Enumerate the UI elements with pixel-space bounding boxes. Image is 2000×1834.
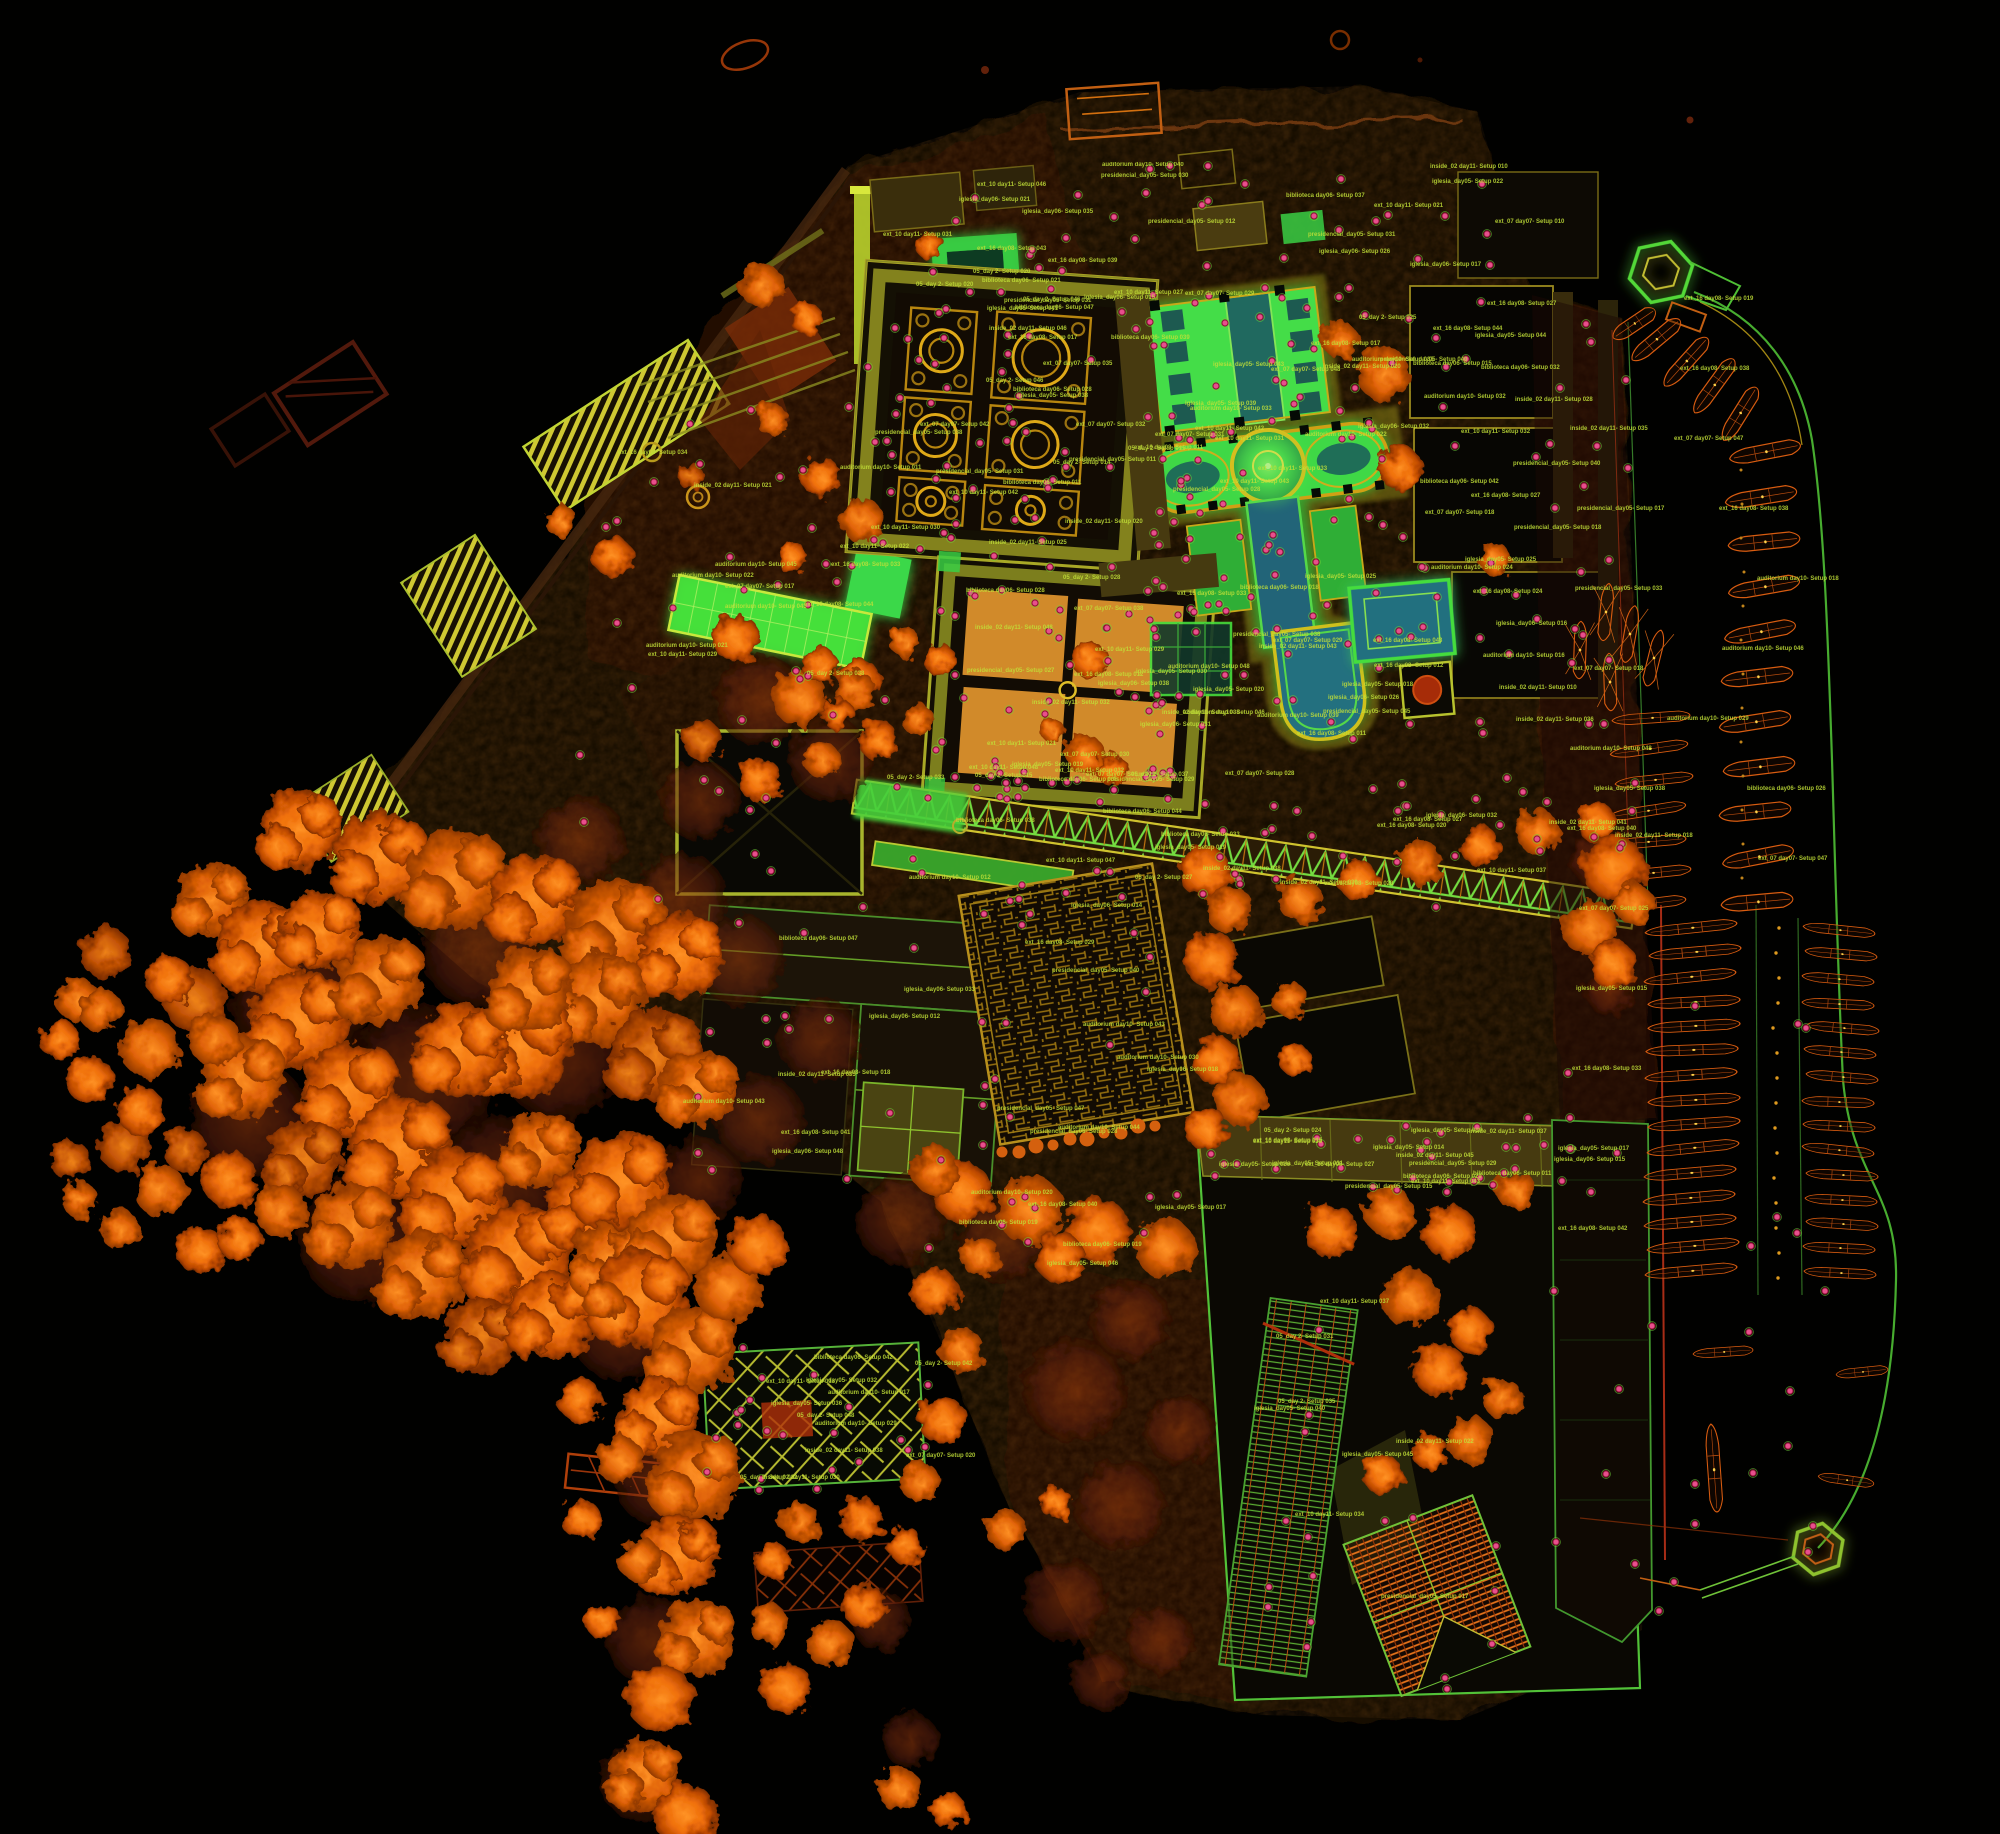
svg-text:ext_16 day08- Setup 015: ext_16 day08- Setup 015	[1253, 1138, 1323, 1144]
svg-text:ext_07 day07- Setup 047: ext_07 day07- Setup 047	[1758, 856, 1828, 862]
svg-text:ext_16 day08- Setup 038: ext_16 day08- Setup 038	[1680, 366, 1750, 372]
svg-text:presidencial_day05- Setup 040: presidencial_day05- Setup 040	[1052, 968, 1140, 974]
svg-text:biblioteca day06- Setup 032: biblioteca day06- Setup 032	[1481, 365, 1560, 371]
svg-text:biblioteca day06- Setup 019: biblioteca day06- Setup 019	[959, 1220, 1038, 1226]
svg-text:ext_16 day08- Setup 011: ext_16 day08- Setup 011	[1297, 731, 1367, 737]
svg-text:05_day 2- Setup 014: 05_day 2- Setup 014	[1053, 460, 1111, 466]
svg-text:05_day 2- Setup 015: 05_day 2- Setup 015	[975, 773, 1033, 779]
svg-text:ext_16 day08- Setup 033: ext_16 day08- Setup 033	[831, 562, 901, 568]
svg-text:ext_10 day11- Setup 042: ext_10 day11- Setup 042	[1195, 426, 1265, 432]
svg-text:biblioteca day06- Setup 011: biblioteca day06- Setup 011	[1003, 480, 1082, 486]
svg-text:ext_10 day11- Setup 043: ext_10 day11- Setup 043	[1220, 479, 1290, 485]
svg-text:iglesia_day05- Setup 019: iglesia_day05- Setup 019	[1411, 1128, 1483, 1134]
svg-text:inside_02 day11- Setup 028: inside_02 day11- Setup 028	[1515, 397, 1593, 403]
svg-text:ext_07 day07- Setup 032: ext_07 day07- Setup 032	[1076, 422, 1146, 428]
svg-text:presidencial_day05- Setup 030: presidencial_day05- Setup 030	[1101, 173, 1189, 179]
svg-text:biblioteca day06- Setup 039: biblioteca day06- Setup 039	[1111, 335, 1190, 341]
svg-text:05_day 2- Setup 048: 05_day 2- Setup 048	[797, 1413, 855, 1419]
svg-text:05_day 2- Setup 025: 05_day 2- Setup 025	[1359, 315, 1417, 321]
svg-text:ext_16 day08- Setup 043: ext_16 day08- Setup 043	[977, 246, 1047, 252]
svg-text:biblioteca day06- Setup 021: biblioteca day06- Setup 021	[982, 278, 1061, 284]
svg-text:presidencial_day05- Setup 040: presidencial_day05- Setup 040	[1513, 461, 1601, 467]
svg-text:iglesia_day05- Setup 040: iglesia_day05- Setup 040	[1254, 1406, 1326, 1412]
svg-text:auditorium day10- Setup 039: auditorium day10- Setup 039	[1257, 713, 1339, 719]
svg-text:biblioteca day06- Setup 047: biblioteca day06- Setup 047	[779, 936, 858, 942]
svg-text:05_day 2- Setup 031: 05_day 2- Setup 031	[1276, 1334, 1334, 1340]
svg-text:biblioteca day06- Setup 044: biblioteca day06- Setup 044	[1103, 809, 1182, 815]
svg-text:presidencial_day05- Setup 031: presidencial_day05- Setup 031	[936, 469, 1024, 475]
svg-text:iglesia_day06- Setup 032: iglesia_day06- Setup 032	[1358, 424, 1430, 430]
svg-text:ext_10 day11- Setup 046: ext_10 day11- Setup 046	[977, 182, 1047, 188]
svg-text:inside_02 day11- Setup 032: inside_02 day11- Setup 032	[1032, 700, 1110, 706]
svg-text:biblioteca day06- Setup 047: biblioteca day06- Setup 047	[1015, 305, 1094, 311]
svg-text:ext_10 day11- Setup 022: ext_10 day11- Setup 022	[840, 544, 910, 550]
svg-text:inside_02 day11- Setup 035: inside_02 day11- Setup 035	[778, 1072, 856, 1078]
svg-text:auditorium day10- Setup 018: auditorium day10- Setup 018	[1757, 576, 1839, 582]
svg-text:inside_02 day11- Setup 020: inside_02 day11- Setup 020	[1065, 519, 1143, 525]
svg-text:iglesia_day06- Setup 038: iglesia_day06- Setup 038	[1098, 681, 1170, 687]
svg-text:ext_10 day11- Setup 047: ext_10 day11- Setup 047	[1046, 858, 1116, 864]
svg-text:ext_07 day07- Setup 020: ext_07 day07- Setup 020	[906, 1453, 976, 1459]
svg-text:biblioteca day06- Setup 042: biblioteca day06- Setup 042	[814, 1355, 893, 1361]
svg-text:auditorium day10- Setup 040: auditorium day10- Setup 040	[1102, 162, 1184, 168]
svg-text:auditorium day10- Setup 043: auditorium day10- Setup 043	[1083, 1022, 1165, 1028]
svg-text:iglesia_day05- Setup 014: iglesia_day05- Setup 014	[1373, 1145, 1445, 1151]
svg-text:inside_02 day11- Setup 046: inside_02 day11- Setup 046	[989, 326, 1067, 332]
svg-text:ext_07 day07- Setup 017: ext_07 day07- Setup 017	[725, 584, 795, 590]
svg-text:ext_10 day11- Setup 021: ext_10 day11- Setup 021	[987, 741, 1057, 747]
svg-text:biblioteca day06- Setup 018: biblioteca day06- Setup 018	[1240, 585, 1319, 591]
svg-text:iglesia_day06- Setup 017: iglesia_day06- Setup 017	[1410, 262, 1482, 268]
svg-text:ext_10 day11- Setup 029: ext_10 day11- Setup 029	[648, 652, 718, 658]
svg-text:ext_16 day08- Setup 034: ext_16 day08- Setup 034	[618, 450, 688, 456]
svg-text:05_day 2- Setup 033: 05_day 2- Setup 033	[887, 775, 945, 781]
svg-text:auditorium day10- Setup 016: auditorium day10- Setup 016	[1483, 653, 1565, 659]
svg-text:ext_10 day11- Setup 037: ext_10 day11- Setup 037	[1320, 1299, 1390, 1305]
svg-text:presidencial_day05- Setup 029: presidencial_day05- Setup 029	[1409, 1161, 1497, 1167]
svg-text:05_day 2- Setup 027: 05_day 2- Setup 027	[1135, 875, 1193, 881]
svg-text:presidencial_day05- Setup 047: presidencial_day05- Setup 047	[997, 1106, 1085, 1112]
svg-text:05_day 2- Setup 020: 05_day 2- Setup 020	[973, 269, 1031, 275]
svg-text:auditorium day10- Setup 017: auditorium day10- Setup 017	[828, 1390, 910, 1396]
svg-text:05_day 2- Setup 038: 05_day 2- Setup 038	[807, 671, 865, 677]
svg-text:ext_16 day08- Setup 027: ext_16 day08- Setup 027	[1471, 493, 1541, 499]
svg-text:biblioteca day06- Setup 028: biblioteca day06- Setup 028	[1013, 387, 1092, 393]
svg-text:ext_16 day08- Setup 040: ext_16 day08- Setup 040	[1567, 826, 1637, 832]
svg-text:ext_10 day11- Setup 030: ext_10 day11- Setup 030	[871, 525, 941, 531]
svg-text:ext_07 day07- Setup 038: ext_07 day07- Setup 038	[1074, 606, 1144, 612]
svg-text:presidencial_day05- Setup 028: presidencial_day05- Setup 028	[1173, 487, 1261, 493]
svg-text:ext_10 day11- Setup 027: ext_10 day11- Setup 027	[1114, 290, 1184, 296]
svg-text:auditorium day10- Setup 011: auditorium day10- Setup 011	[840, 465, 922, 471]
svg-text:presidencial_day05- Setup 018: presidencial_day05- Setup 018	[1514, 525, 1602, 531]
svg-text:ext_10 day11- Setup 042: ext_10 day11- Setup 042	[949, 490, 1019, 496]
svg-text:ext_16 day08- Setup 024: ext_16 day08- Setup 024	[1473, 589, 1543, 595]
svg-text:ext_07 day07- Setup 018: ext_07 day07- Setup 018	[1425, 510, 1495, 516]
svg-text:05_day 2- Setup 035: 05_day 2- Setup 035	[1278, 1399, 1336, 1405]
svg-text:auditorium day10- Setup 029: auditorium day10- Setup 029	[1667, 716, 1749, 722]
svg-text:iglesia_day06- Setup 048: iglesia_day06- Setup 048	[772, 1149, 844, 1155]
svg-text:biblioteca day06- Setup 028: biblioteca day06- Setup 028	[966, 588, 1045, 594]
svg-text:ext_16 day08- Setup 040: ext_16 day08- Setup 040	[1028, 1202, 1098, 1208]
svg-text:iglesia_day05- Setup 026: iglesia_day05- Setup 026	[1219, 1162, 1291, 1168]
svg-text:05_day 2- Setup 020: 05_day 2- Setup 020	[916, 282, 974, 288]
svg-text:ext_07 day07- Setup 029: ext_07 day07- Setup 029	[1185, 291, 1255, 297]
svg-text:05_day 2- Setup 024: 05_day 2- Setup 024	[1264, 1128, 1322, 1134]
svg-text:auditorium day10- Setup 020: auditorium day10- Setup 020	[971, 1190, 1053, 1196]
svg-text:ext_07 day07- Setup 035: ext_07 day07- Setup 035	[1043, 361, 1113, 367]
svg-text:auditorium day10- Setup 022: auditorium day10- Setup 022	[1305, 432, 1387, 438]
svg-text:ext_16 day08- Setup 012: ext_16 day08- Setup 012	[1374, 663, 1444, 669]
svg-text:ext_16 day08- Setup 028: ext_16 day08- Setup 028	[1324, 881, 1394, 887]
svg-text:ext_16 day08- Setup 017: ext_16 day08- Setup 017	[1008, 335, 1078, 341]
svg-text:ext_10 day11- Setup 031: ext_10 day11- Setup 031	[883, 232, 953, 238]
svg-text:auditorium day10- Setup 032: auditorium day10- Setup 032	[1424, 394, 1506, 400]
svg-text:auditorium day10- Setup 046: auditorium day10- Setup 046	[1722, 646, 1804, 652]
svg-text:presidencial_day05- Setup 028: presidencial_day05- Setup 028	[1030, 1129, 1118, 1135]
svg-text:inside_02 day11- Setup 038: inside_02 day11- Setup 038	[1203, 866, 1281, 872]
svg-text:presidencial_day05- Setup 012: presidencial_day05- Setup 012	[1148, 219, 1236, 225]
svg-text:iglesia_day05- Setup 022: iglesia_day05- Setup 022	[1432, 179, 1504, 185]
svg-text:05_day 2- Setup 042: 05_day 2- Setup 042	[915, 1361, 973, 1367]
svg-text:iglesia_day05- Setup 019: iglesia_day05- Setup 019	[1155, 845, 1227, 851]
svg-text:biblioteca day06- Setup 037: biblioteca day06- Setup 037	[1286, 193, 1365, 199]
svg-text:ext_16 day08- Setup 043: ext_16 day08- Setup 043	[1373, 638, 1443, 644]
svg-text:iglesia_day05- Setup 045: iglesia_day05- Setup 045	[1342, 1452, 1414, 1458]
svg-text:iglesia_day05- Setup 046: iglesia_day05- Setup 046	[1047, 1261, 1119, 1267]
svg-text:biblioteca day06- Setup 026: biblioteca day06- Setup 026	[1747, 786, 1826, 792]
svg-text:iglesia_day05- Setup 025: iglesia_day05- Setup 025	[1465, 557, 1537, 563]
svg-text:inside_02 day11- Setup 022: inside_02 day11- Setup 022	[1396, 1439, 1474, 1445]
svg-text:auditorium day10- Setup 030: auditorium day10- Setup 030	[1117, 1055, 1199, 1061]
svg-text:inside_02 day11- Setup 025: inside_02 day11- Setup 025	[989, 540, 1067, 546]
svg-text:ext_16 day08- Setup 033: ext_16 day08- Setup 033	[1572, 1066, 1642, 1072]
svg-text:biblioteca day06- Setup 019: biblioteca day06- Setup 019	[1063, 1242, 1142, 1248]
svg-text:iglesia_day06- Setup 033: iglesia_day06- Setup 033	[904, 987, 976, 993]
svg-text:presidencial_day05- Setup 017: presidencial_day05- Setup 017	[1577, 506, 1665, 512]
svg-text:iglesia_day06- Setup 014: iglesia_day06- Setup 014	[1071, 903, 1143, 909]
svg-text:iglesia_day05- Setup 032: iglesia_day05- Setup 032	[806, 1378, 878, 1384]
svg-text:auditorium day10- Setup 029: auditorium day10- Setup 029	[815, 1421, 897, 1427]
svg-text:ext_16 day08- Setup 038: ext_16 day08- Setup 038	[1719, 506, 1789, 512]
svg-text:biblioteca day06- Setup 011: biblioteca day06- Setup 011	[1473, 1171, 1552, 1177]
svg-text:presidencial_day05- Setup 033: presidencial_day05- Setup 033	[1575, 586, 1663, 592]
svg-text:iglesia_day05- Setup 039: iglesia_day05- Setup 039	[1185, 401, 1257, 407]
svg-text:iglesia_day05- Setup 025: iglesia_day05- Setup 025	[1305, 574, 1377, 580]
svg-text:auditorium day10- Setup 048: auditorium day10- Setup 048	[1570, 746, 1652, 752]
svg-text:iglesia_day06- Setup 018: iglesia_day06- Setup 018	[1147, 1067, 1219, 1073]
svg-text:inside_02 day11- Setup 030: inside_02 day11- Setup 030	[762, 1475, 840, 1481]
svg-text:biblioteca day06- Setup 038: biblioteca day06- Setup 038	[956, 818, 1035, 824]
svg-text:inside_02 day11- Setup 010: inside_02 day11- Setup 010	[1430, 164, 1508, 170]
svg-text:ext_16 day08- Setup 041: ext_16 day08- Setup 041	[781, 1130, 851, 1136]
svg-text:inside_02 day11- Setup 038: inside_02 day11- Setup 038	[1162, 710, 1240, 716]
svg-text:inside_02 day11- Setup 043: inside_02 day11- Setup 043	[1259, 644, 1337, 650]
svg-text:biblioteca day06- Setup 042: biblioteca day06- Setup 042	[1420, 479, 1499, 485]
svg-text:inside_02 day11- Setup 035: inside_02 day11- Setup 035	[1570, 426, 1648, 432]
svg-text:ext_10 day11- Setup 029: ext_10 day11- Setup 029	[1095, 647, 1165, 653]
svg-text:auditorium day10- Setup 021: auditorium day10- Setup 021	[646, 643, 728, 649]
svg-text:auditorium day10- Setup 045: auditorium day10- Setup 045	[715, 562, 797, 568]
svg-text:iglesia_day05- Setup 038: iglesia_day05- Setup 038	[1017, 393, 1089, 399]
svg-text:iglesia_day06- Setup 015: iglesia_day06- Setup 015	[1554, 1157, 1626, 1163]
svg-text:iglesia_day06- Setup 026: iglesia_day06- Setup 026	[1328, 695, 1400, 701]
svg-text:auditorium day10- Setup 022: auditorium day10- Setup 022	[672, 573, 754, 579]
svg-text:auditorium day10- Setup 012: auditorium day10- Setup 012	[909, 875, 991, 881]
svg-text:05_day 2- Setup 015: 05_day 2- Setup 015	[1128, 446, 1186, 452]
svg-text:ext_16 day08- Setup 044: ext_16 day08- Setup 044	[804, 602, 874, 608]
svg-text:auditorium day10- Setup 038: auditorium day10- Setup 038	[1352, 357, 1434, 363]
svg-text:iglesia_day05- Setup 015: iglesia_day05- Setup 015	[1576, 986, 1648, 992]
svg-text:ext_07 day07- Setup 025: ext_07 day07- Setup 025	[1579, 906, 1649, 912]
svg-text:iglesia_day06- Setup 026: iglesia_day06- Setup 026	[1319, 249, 1391, 255]
svg-text:presidencial_day05- Setup 015: presidencial_day05- Setup 015	[1345, 1184, 1433, 1190]
svg-text:ext_07 day07- Setup 030: ext_07 day07- Setup 030	[1060, 752, 1130, 758]
svg-text:ext_16 day08- Setup 029: ext_16 day08- Setup 029	[1025, 940, 1095, 946]
svg-text:inside_02 day11- Setup 048: inside_02 day11- Setup 048	[975, 625, 1053, 631]
svg-text:ext_07 day07- Setup 028: ext_07 day07- Setup 028	[1225, 771, 1295, 777]
svg-text:ext_07 day07- Setup 042: ext_07 day07- Setup 042	[920, 422, 990, 428]
svg-text:iglesia_day06- Setup 021: iglesia_day06- Setup 021	[959, 197, 1031, 203]
svg-text:iglesia_day05- Setup 036: iglesia_day05- Setup 036	[771, 1401, 843, 1407]
svg-text:ext_10 day11- Setup 033: ext_10 day11- Setup 033	[1258, 466, 1328, 472]
svg-text:presidencial_day05- Setup 031: presidencial_day05- Setup 031	[1004, 298, 1092, 304]
svg-text:inside_02 day11- Setup 045: inside_02 day11- Setup 045	[1396, 1153, 1474, 1159]
svg-text:presidencial_day05- Setup 038: presidencial_day05- Setup 038	[875, 430, 963, 436]
svg-text:ext_10 day11- Setup 034: ext_10 day11- Setup 034	[1295, 1512, 1365, 1518]
svg-text:ext_10 day11- Setup 021: ext_10 day11- Setup 021	[1374, 203, 1444, 209]
svg-text:iglesia_day05- Setup 038: iglesia_day05- Setup 038	[1594, 786, 1666, 792]
svg-text:inside_02 day11- Setup 018: inside_02 day11- Setup 018	[1615, 833, 1693, 839]
svg-text:iglesia_day05- Setup 018: iglesia_day05- Setup 018	[1342, 682, 1414, 688]
svg-text:ext_16 day08- Setup 033: ext_16 day08- Setup 033	[1177, 591, 1247, 597]
svg-text:inside_02 day11- Setup 036: inside_02 day11- Setup 036	[1516, 717, 1594, 723]
svg-text:ext_16 day08- Setup 044: ext_16 day08- Setup 044	[1433, 326, 1503, 332]
svg-text:ext_07 day07- Setup 018: ext_07 day07- Setup 018	[1574, 666, 1644, 672]
svg-text:iglesia_day05- Setup 044: iglesia_day05- Setup 044	[1475, 333, 1547, 339]
svg-text:ext_16 day08- Setup 027: ext_16 day08- Setup 027	[1487, 301, 1557, 307]
svg-text:05_day 2- Setup 037: 05_day 2- Setup 037	[1131, 772, 1189, 778]
svg-text:inside_02 day11- Setup 010: inside_02 day11- Setup 010	[1499, 685, 1577, 691]
svg-text:iglesia_day06- Setup 035: iglesia_day06- Setup 035	[1022, 209, 1094, 215]
svg-text:biblioteca day06- Setup 029: biblioteca day06- Setup 029	[1403, 1174, 1482, 1180]
svg-text:ext_16 day08- Setup 042: ext_16 day08- Setup 042	[1558, 1226, 1628, 1232]
svg-text:presidencial_day05- Setup 031: presidencial_day05- Setup 031	[1308, 232, 1396, 238]
svg-text:iglesia_day05- Setup 043: iglesia_day05- Setup 043	[1213, 362, 1285, 368]
svg-text:iglesia_day06- Setup 031: iglesia_day06- Setup 031	[1140, 722, 1212, 728]
svg-text:ext_07 day07- Setup 029: ext_07 day07- Setup 029	[1273, 638, 1343, 644]
svg-text:presidencial_day05- Setup 027: presidencial_day05- Setup 027	[967, 668, 1055, 674]
svg-text:05_day 2- Setup 028: 05_day 2- Setup 028	[1063, 575, 1121, 581]
svg-text:ext_16 day08- Setup 019: ext_16 day08- Setup 019	[1684, 296, 1754, 302]
svg-text:ext_16 day08- Setup 012: ext_16 day08- Setup 012	[1074, 672, 1144, 678]
svg-text:biblioteca day06- Setup 033: biblioteca day06- Setup 033	[1161, 832, 1240, 838]
svg-text:ext_07 day07- Setup 047: ext_07 day07- Setup 047	[1674, 436, 1744, 442]
svg-text:ext_16 day08- Setup 017: ext_16 day08- Setup 017	[1311, 341, 1381, 347]
svg-text:ext_10 day11- Setup 037: ext_10 day11- Setup 037	[1477, 868, 1547, 874]
svg-text:ext_16 day08- Setup 039: ext_16 day08- Setup 039	[1048, 258, 1118, 264]
svg-text:iglesia_day06- Setup 016: iglesia_day06- Setup 016	[1496, 621, 1568, 627]
svg-text:inside_02 day11- Setup 038: inside_02 day11- Setup 038	[805, 1448, 883, 1454]
svg-text:presidencial_day05- Setup 017: presidencial_day05- Setup 017	[1381, 1594, 1469, 1600]
svg-text:iglesia_day05- Setup 017: iglesia_day05- Setup 017	[1558, 1146, 1630, 1152]
svg-text:auditorium day10- Setup 024: auditorium day10- Setup 024	[1431, 565, 1513, 571]
svg-text:ext_10 day11- Setup 032: ext_10 day11- Setup 032	[1461, 429, 1531, 435]
svg-text:ext_10 day11- Setup 031: ext_10 day11- Setup 031	[1215, 436, 1285, 442]
svg-text:ext_07 day07- Setup 010: ext_07 day07- Setup 010	[1495, 219, 1565, 225]
svg-text:inside_02 day11- Setup 021: inside_02 day11- Setup 021	[694, 483, 772, 489]
svg-text:auditorium day10- Setup 043: auditorium day10- Setup 043	[725, 604, 807, 610]
svg-text:iglesia_day06- Setup 012: iglesia_day06- Setup 012	[869, 1014, 941, 1020]
svg-text:auditorium day10- Setup 043: auditorium day10- Setup 043	[683, 1099, 765, 1105]
svg-text:05_day 2- Setup 046: 05_day 2- Setup 046	[986, 378, 1044, 384]
svg-text:ext_16 day08- Setup 020: ext_16 day08- Setup 020	[1377, 823, 1447, 829]
svg-text:iglesia_day05- Setup 020: iglesia_day05- Setup 020	[1193, 687, 1265, 693]
svg-text:iglesia_day05- Setup 017: iglesia_day05- Setup 017	[1155, 1205, 1227, 1211]
svg-text:auditorium day10- Setup 048: auditorium day10- Setup 048	[1168, 664, 1250, 670]
